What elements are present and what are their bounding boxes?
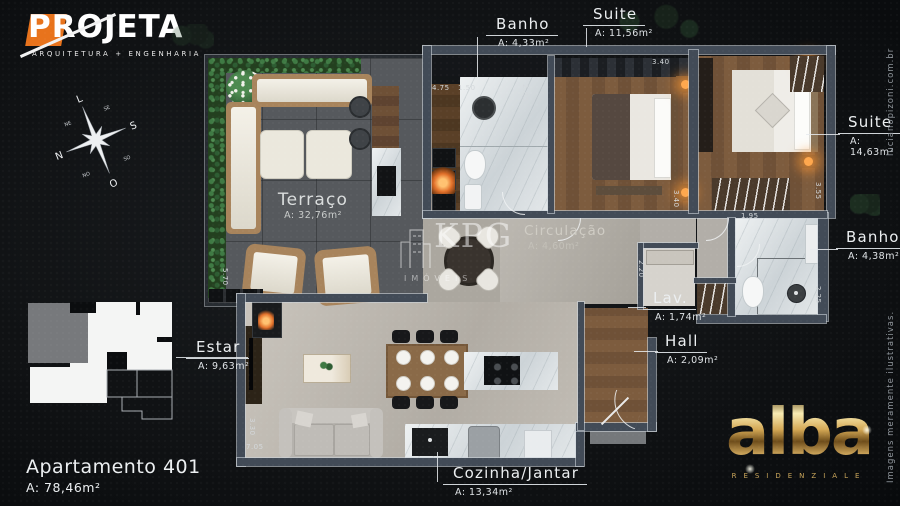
wall (237, 294, 245, 466)
dimension-label: 1.50 (458, 84, 476, 92)
compass-letter-se: SE (103, 105, 111, 113)
room-area: A: 32,76m² (263, 210, 363, 221)
leader-line (806, 134, 840, 135)
foliage-shadow (850, 194, 880, 216)
sofa-cushion (294, 424, 334, 456)
dining-chair (416, 396, 434, 409)
dimension-label: 3.30 (248, 418, 256, 436)
projeta-logo-tagline: ARQUITETURA + ENGENHARIA (32, 50, 201, 58)
room-name: Hall (655, 332, 707, 353)
room-area: A: 11,56m² (583, 26, 653, 39)
washbasin (472, 96, 496, 120)
room-name: Cozinha/Jantar (443, 464, 587, 485)
compass-letter-so: SO (123, 155, 132, 163)
throw-pillow (295, 410, 314, 427)
room-label-cozinha-jantar: Cozinha/Jantar A: 13,34m² (443, 463, 587, 498)
cooktop (484, 356, 520, 385)
room-name: Suite (583, 5, 645, 26)
dimension-label: 1.95 (741, 212, 759, 220)
alba-logo-subtitle: RESIDENZIALE (703, 472, 895, 480)
plant (318, 359, 334, 373)
wall (728, 218, 735, 316)
room-name: Lav. (643, 289, 696, 310)
fireplace-flame (258, 310, 274, 330)
compass-letter-left: N (54, 150, 65, 163)
tv-console (698, 58, 713, 152)
dimension-label: 3.55 (814, 182, 822, 200)
dining-chair (440, 396, 458, 409)
fireplace-flame (431, 166, 455, 194)
room-name: Banho (486, 15, 558, 36)
planter-bed (208, 58, 226, 298)
toilet (742, 276, 764, 308)
leader-line (437, 452, 438, 482)
wall (640, 243, 698, 248)
room-area: A: 4,38m² (836, 249, 900, 262)
dimension-label: 2.25 (814, 286, 822, 304)
room-label-estar: Estar A: 9,63m² (186, 337, 249, 372)
sofa-arm (370, 408, 383, 458)
tv (249, 338, 253, 390)
outdoor-sofa (226, 102, 261, 234)
shower-head (787, 284, 806, 303)
dimension-label: 4.75 (432, 84, 450, 92)
wall (578, 302, 584, 430)
compass-rose-icon: L S O N NE SE SO NO (50, 88, 146, 192)
unit-title: Apartamento 401 (26, 456, 201, 478)
wall (818, 213, 828, 321)
dimension-label: 5.70 (221, 268, 229, 286)
corridor-floor (640, 218, 696, 246)
room-name: Banho (836, 228, 900, 249)
room-label-lav: Lav. A: 1,74m² (643, 288, 706, 323)
plate (444, 350, 459, 365)
lamp-glow (804, 157, 813, 166)
room-area: A: 1,74m² (643, 310, 706, 323)
floor-plan-poster: PROJETA ARQUITETURA + ENGENHARIA L S O N… (0, 0, 900, 506)
wall (694, 278, 736, 283)
watermark-buildings-icon (398, 220, 432, 272)
alba-logo: alba RESIDENZIALE (703, 398, 895, 498)
room-name: Estar (186, 338, 249, 359)
disclaimer-note: Imagens meramente ilustrativas. (886, 298, 896, 483)
compass-letter-ne: NE (64, 120, 73, 128)
dining-chair (392, 396, 410, 409)
entry-porch (590, 431, 646, 444)
dining-chair (440, 330, 458, 343)
throw-pillow (351, 413, 368, 428)
dining-chair (392, 330, 410, 343)
closet-hangers (712, 178, 790, 211)
appliance (432, 192, 456, 212)
shower-divider (460, 146, 548, 147)
dimension-label: 2.85 (521, 84, 529, 102)
bed (592, 94, 676, 180)
room-label-suite-1: Suite A: 11,56m² (583, 4, 653, 39)
dimension-label: 2.20 (637, 260, 645, 278)
leader-line (477, 37, 478, 77)
plate (420, 350, 435, 365)
leader-line (810, 249, 838, 250)
room-label-banho-1: Banho A: 4,33m² (486, 14, 558, 49)
room-label-hall: Hall A: 2,09m² (655, 331, 718, 366)
dimension-label: 7.05 (246, 443, 264, 451)
room-area: A: 13,34m² (443, 485, 587, 498)
kitchen-sink (412, 428, 448, 456)
room-label-terraco: Terraço A: 32,76m² (263, 190, 363, 221)
glint (862, 425, 872, 435)
unit-title-block: Apartamento 401 A: 78,46m² (26, 456, 201, 495)
plate (396, 350, 411, 365)
foliage-shadow (168, 24, 214, 50)
wall (697, 315, 826, 323)
room-area: A: 4,33m² (486, 36, 558, 49)
compass-letter-bottom: O (108, 177, 120, 190)
sink (464, 184, 482, 210)
wall (827, 46, 835, 218)
glint (745, 464, 755, 474)
compass-letter-top: L (75, 93, 85, 105)
fridge (468, 426, 500, 461)
plate (420, 376, 435, 391)
dimension-label: 3.40 (672, 190, 680, 208)
sofa-arm (279, 408, 292, 458)
toilet (464, 150, 486, 180)
plate (396, 376, 411, 391)
wall (423, 46, 835, 54)
wall (423, 46, 431, 218)
room-label-banho-2: Banho A: 4,38m² (836, 227, 900, 262)
lav-sink (646, 250, 694, 265)
room-area: A: 4,60m² (524, 239, 624, 252)
faucet (428, 438, 432, 442)
wall (689, 50, 698, 213)
room-area: A: 2,09m² (655, 353, 718, 366)
room-name: Terraço (278, 190, 348, 210)
shower-zone (757, 258, 819, 315)
compass-letter-no: NO (82, 171, 91, 179)
closet-hangers (790, 56, 824, 92)
watermark-text: KPG (434, 216, 513, 255)
keyplan (26, 292, 176, 428)
grill (377, 166, 396, 196)
ottoman (260, 130, 304, 179)
dishwasher (524, 430, 552, 460)
wall (576, 423, 656, 431)
sink (805, 224, 819, 264)
dining-chair (416, 330, 434, 343)
watermark: KPG IMÓVEIS (398, 212, 518, 304)
bar-stool (349, 96, 371, 118)
plate (444, 376, 459, 391)
wardrobe-band (431, 56, 553, 76)
ottoman (306, 130, 352, 179)
bar-stool (349, 128, 371, 150)
compass-letter-right: S (129, 120, 139, 133)
wall (548, 56, 554, 213)
room-label-circulacao: Circulação A: 4,60m² (524, 220, 624, 252)
unit-area: A: 78,46m² (26, 480, 201, 495)
room-name: Circulação (524, 223, 606, 239)
room-area: A: 9,63m² (186, 359, 249, 372)
sofa-cushion (334, 424, 370, 456)
watermark-subtitle: IMÓVEIS (404, 274, 514, 283)
website-note: lucianopizoni.com.br (886, 6, 896, 156)
appliance (432, 148, 456, 168)
dimension-label: 3.40 (652, 58, 670, 66)
bed-bench (596, 186, 662, 195)
